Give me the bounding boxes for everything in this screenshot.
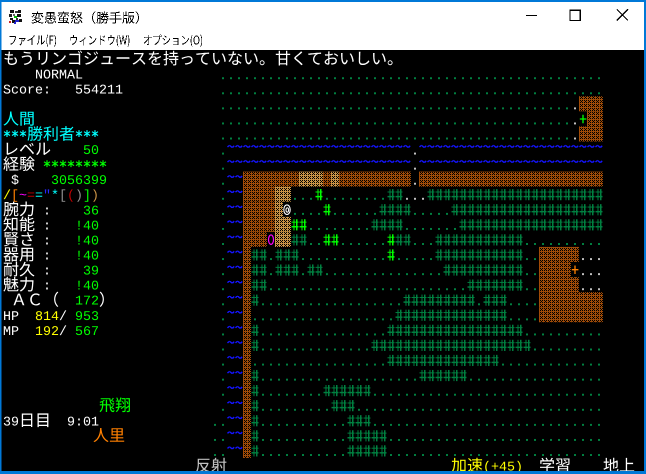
- svg-text:50: 50: [83, 144, 99, 159]
- svg-text:192: 192: [35, 325, 59, 340]
- svg-text:[: [: [59, 189, 67, 204]
- svg-text::: :: [43, 235, 51, 250]
- svg-text:!40: !40: [75, 235, 99, 250]
- svg-text::: :: [43, 204, 51, 219]
- svg-text:): ): [91, 189, 99, 204]
- svg-text::: :: [43, 219, 51, 234]
- svg-text:36: 36: [75, 204, 99, 219]
- svg-text::: :: [43, 265, 51, 280]
- svg-text::: :: [43, 250, 51, 265]
- svg-text:/: /: [59, 310, 67, 325]
- svg-text:172: 172: [75, 295, 99, 310]
- svg-text:HP: HP: [3, 310, 19, 325]
- svg-text:39: 39: [3, 415, 19, 430]
- svg-text:/: /: [59, 325, 67, 340]
- svg-text:9:01: 9:01: [67, 415, 99, 430]
- svg-text:(: (: [67, 189, 75, 204]
- svg-text:MP: MP: [3, 325, 19, 340]
- svg-text:!40: !40: [75, 280, 99, 295]
- svg-text:554211: 554211: [75, 84, 123, 99]
- svg-text:": ": [43, 189, 51, 204]
- svg-text:*: *: [51, 189, 59, 204]
- svg-text:): ): [75, 189, 83, 204]
- svg-text:3056399: 3056399: [51, 174, 107, 189]
- svg-text:!40: !40: [75, 250, 99, 265]
- svg-text:!40: !40: [75, 219, 99, 234]
- svg-text:=: =: [35, 189, 43, 204]
- svg-text:814: 814: [35, 310, 59, 325]
- svg-text:Score:: Score:: [3, 84, 51, 99]
- svg-text:$: $: [11, 174, 19, 189]
- svg-text:=: =: [27, 189, 35, 204]
- svg-text:NORMAL: NORMAL: [35, 69, 83, 84]
- svg-text::: :: [43, 280, 51, 295]
- svg-text:953: 953: [75, 310, 99, 325]
- svg-text:/: /: [3, 189, 11, 204]
- svg-text:[: [: [11, 189, 19, 204]
- svg-text:]: ]: [83, 189, 91, 204]
- svg-text:567: 567: [75, 325, 99, 340]
- svg-text:39: 39: [75, 265, 99, 280]
